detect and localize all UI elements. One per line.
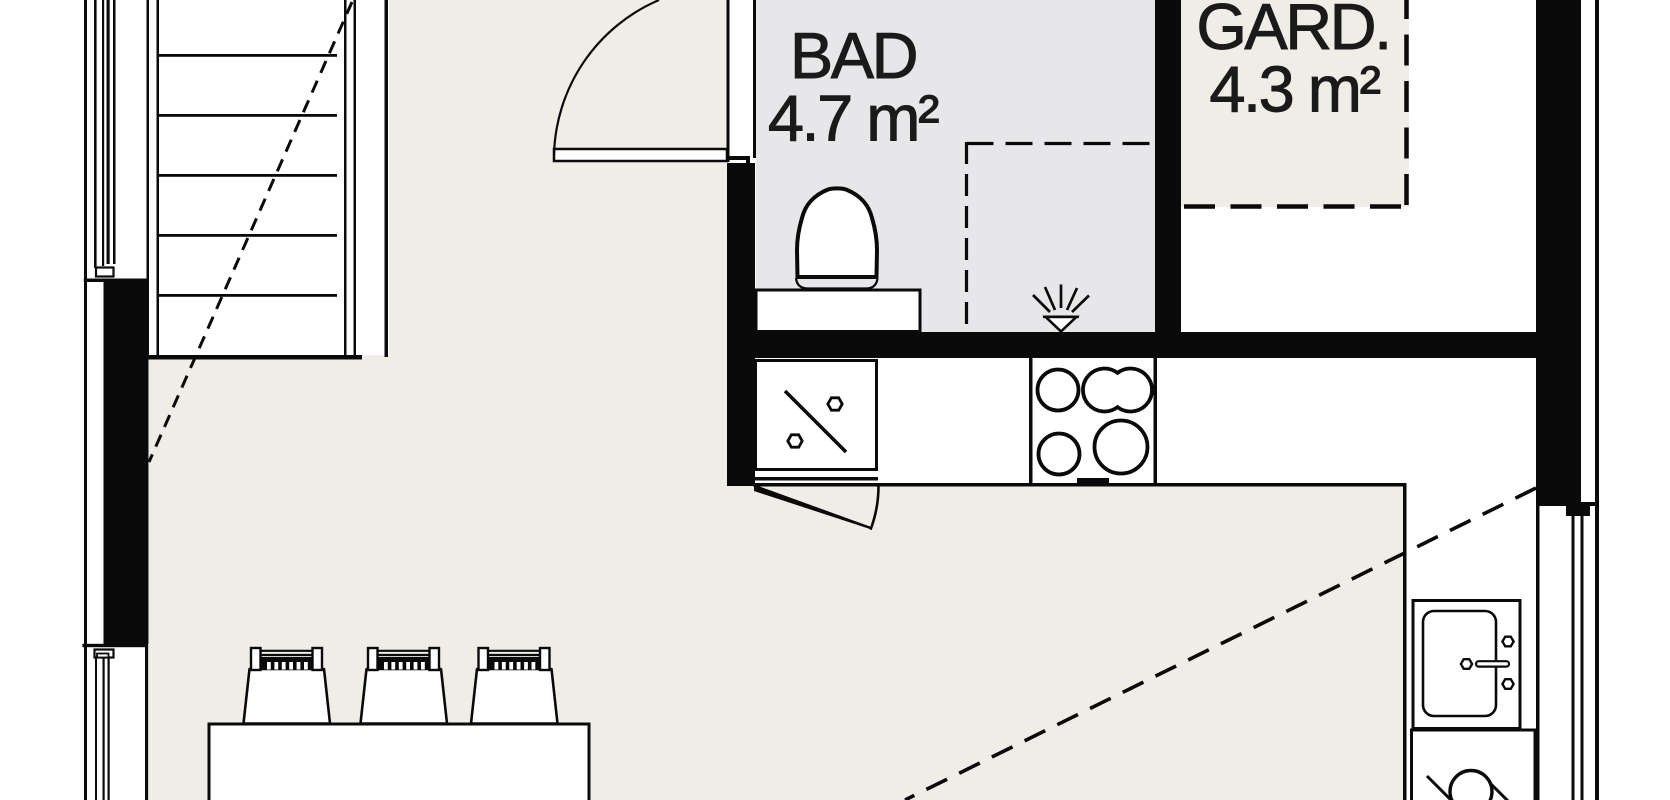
svg-text:4.3 m²: 4.3 m²	[1209, 53, 1380, 126]
svg-text:4.7 m²: 4.7 m²	[768, 82, 939, 155]
